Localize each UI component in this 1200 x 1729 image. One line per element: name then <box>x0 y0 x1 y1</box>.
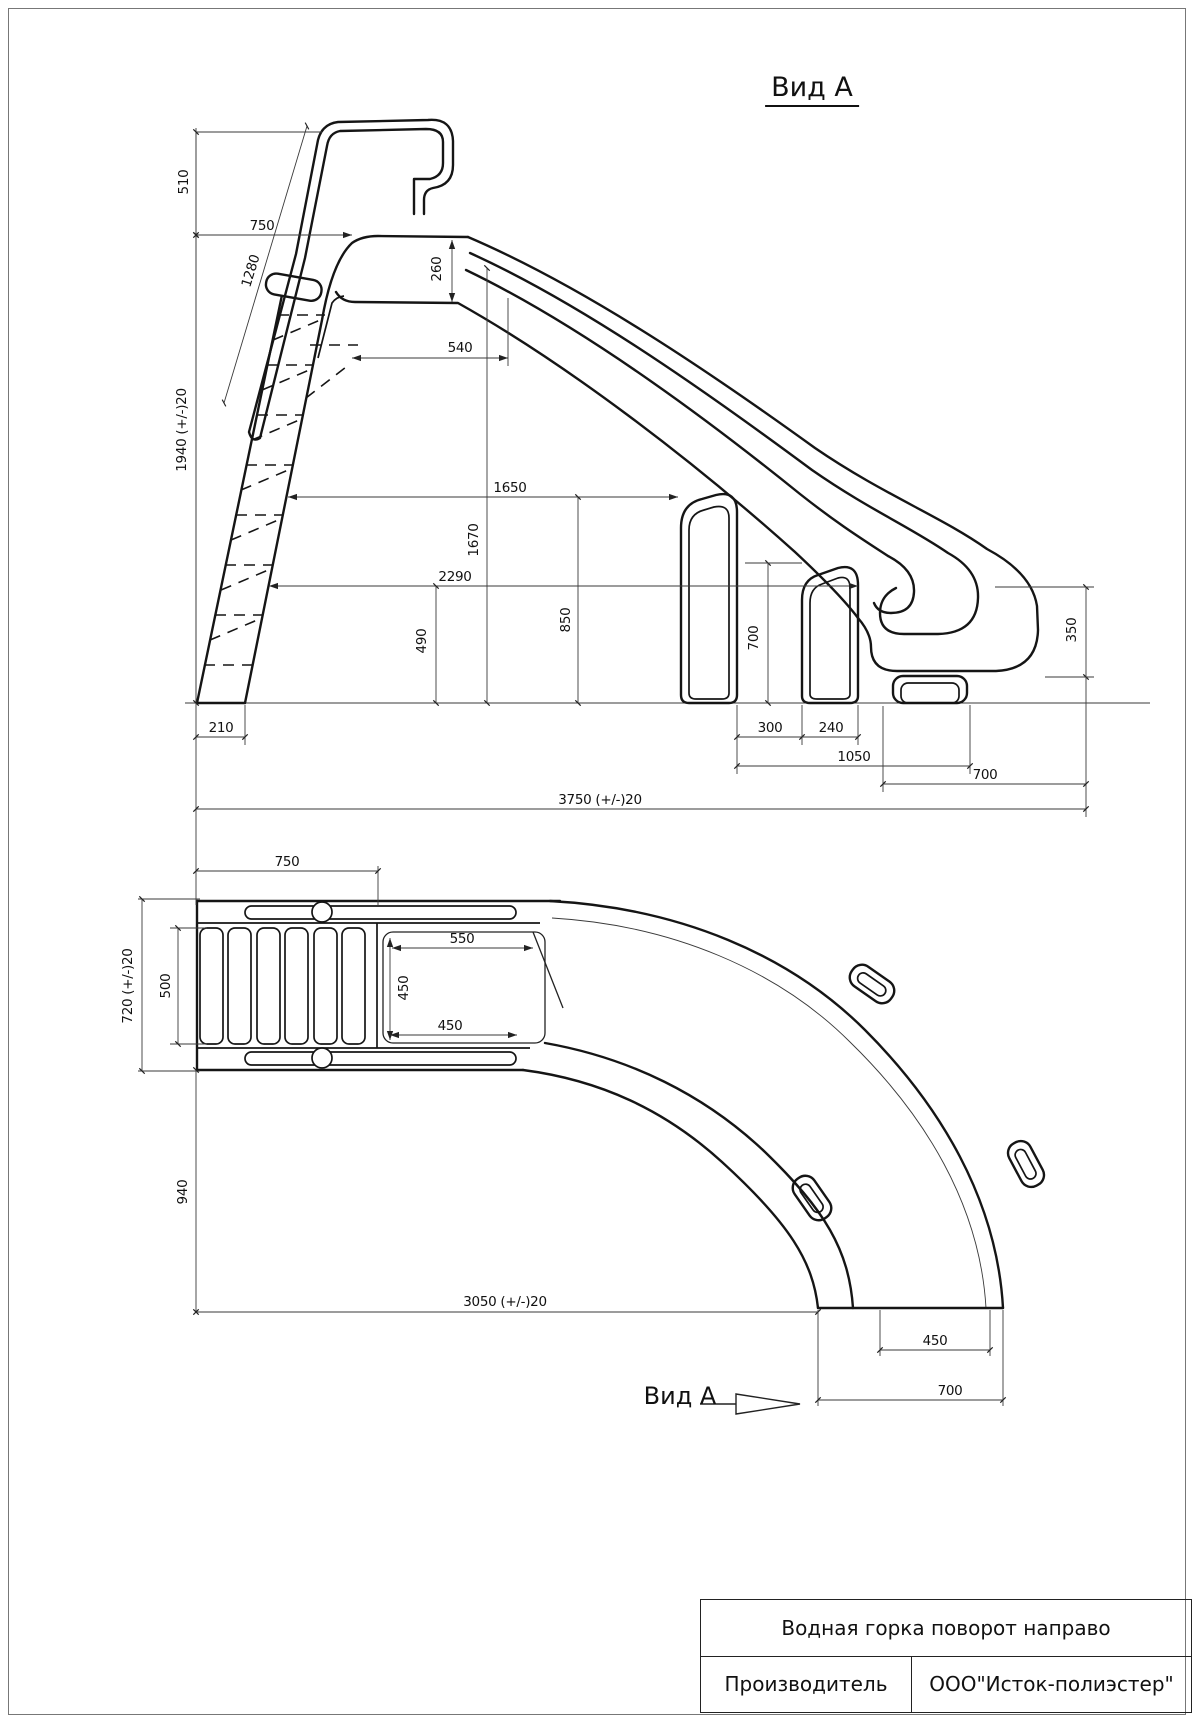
dim-750-plan: 750 <box>275 854 300 870</box>
dim-450-horizontal: 450 <box>438 1018 463 1034</box>
ladder-steps-hidden <box>204 315 358 665</box>
dim-700-leg: 700 <box>746 626 762 651</box>
dim-500: 500 <box>158 974 174 999</box>
dim-700-exit: 700 <box>938 1383 963 1399</box>
dim-850: 850 <box>558 608 574 633</box>
title-block-manufacturer-label: Производитель <box>701 1657 912 1713</box>
view-a-bottom-label: Вид А <box>644 1382 717 1410</box>
dim-3750: 3750 (+/-)20 <box>558 792 642 808</box>
dim-940: 940 <box>175 1180 191 1205</box>
dim-240: 240 <box>819 720 844 736</box>
handrail-side <box>249 120 453 440</box>
dim-350: 350 <box>1064 618 1080 643</box>
dim-750-side: 750 <box>250 218 275 234</box>
dim-700-bottom: 700 <box>973 767 998 783</box>
dim-550: 550 <box>450 931 475 947</box>
dim-450-vertical: 450 <box>396 976 412 1001</box>
dim-1650: 1650 <box>493 480 526 496</box>
side-dim-lines <box>196 126 1094 818</box>
dim-540: 540 <box>448 340 473 356</box>
dim-510: 510 <box>176 170 192 195</box>
dim-3050: 3050 (+/-)20 <box>463 1294 547 1310</box>
dim-260: 260 <box>429 257 445 282</box>
drawing-canvas <box>0 0 1200 1729</box>
dim-210: 210 <box>209 720 234 736</box>
dim-450-exit: 450 <box>923 1333 948 1349</box>
title-block-manufacturer-value: ООО"Исток-полиэстер" <box>912 1657 1191 1713</box>
dim-490: 490 <box>414 629 430 654</box>
ladder-plan <box>197 901 563 1070</box>
dim-300: 300 <box>758 720 783 736</box>
title-block-product: Водная горка поворот направо <box>701 1600 1191 1657</box>
dim-1940: 1940 (+/-)20 <box>174 388 190 472</box>
title-block: Водная горка поворот направо Производите… <box>700 1599 1192 1713</box>
dim-2290: 2290 <box>438 569 471 585</box>
dim-1670: 1670 <box>466 523 482 556</box>
flume-plan <box>523 901 1003 1308</box>
drawing-page: Вид А Вид А 510 750 1280 1940 (+/-)20 26… <box>0 0 1200 1729</box>
dim-1050: 1050 <box>837 749 870 765</box>
view-a-title: Вид А <box>765 72 859 107</box>
dim-720: 720 (+/-)20 <box>120 948 136 1023</box>
